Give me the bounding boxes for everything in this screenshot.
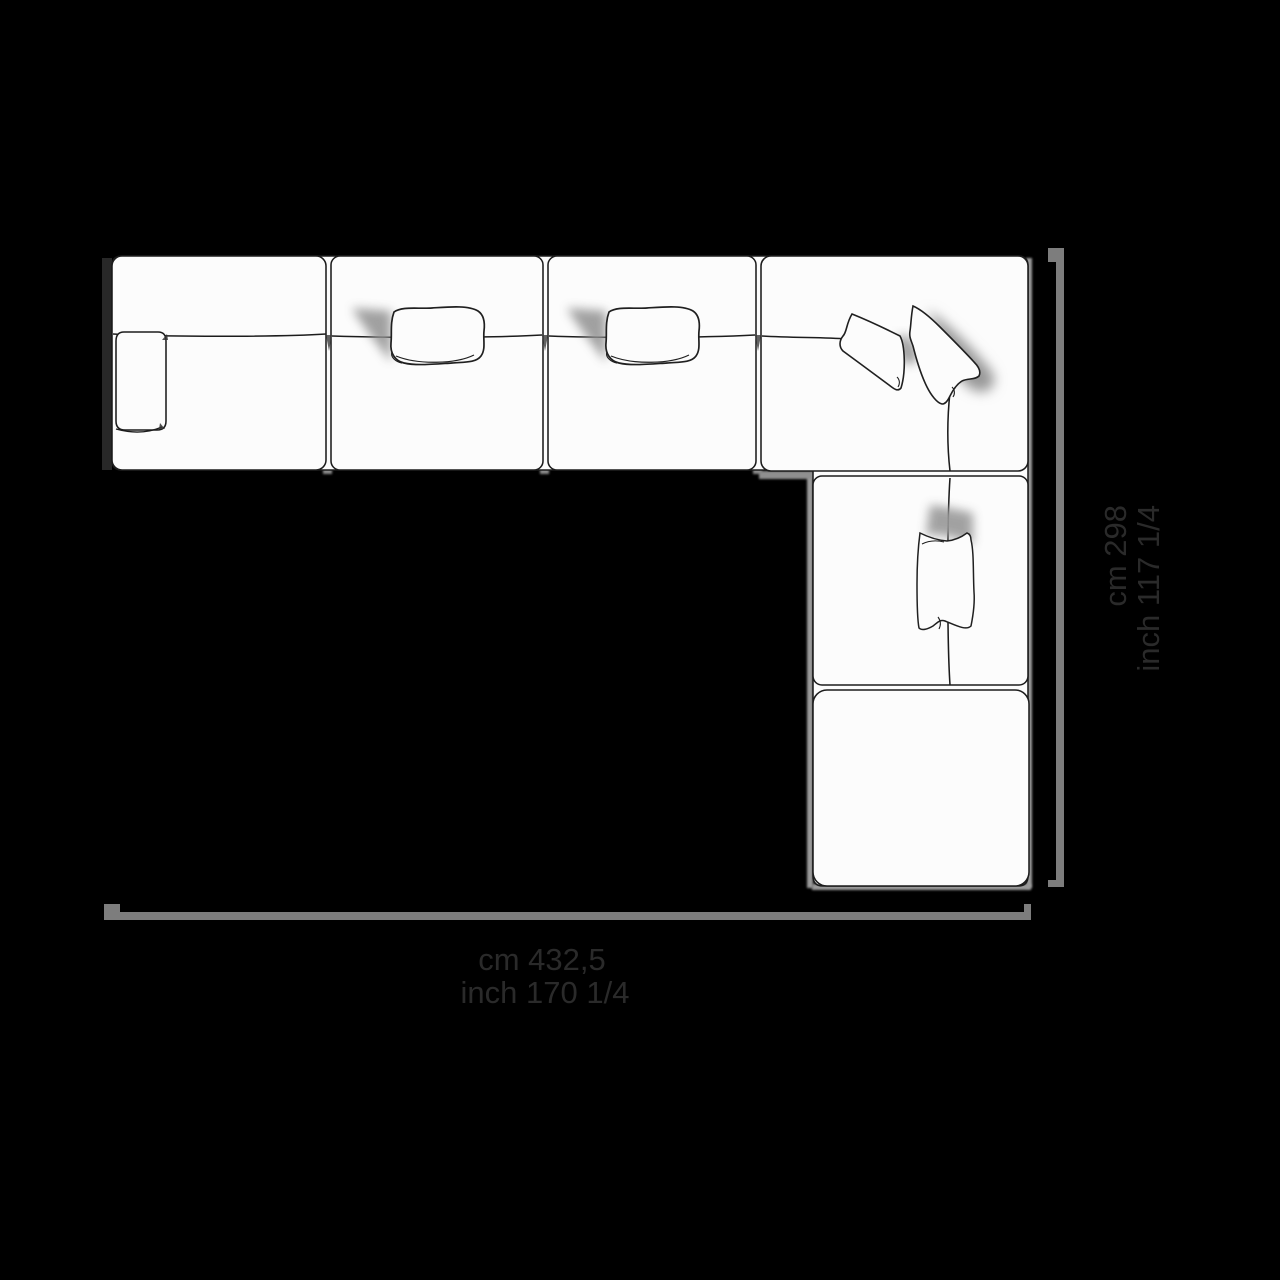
svg-text:cm 432,5: cm 432,5 — [478, 942, 606, 977]
svg-text:cm 298: cm 298 — [1098, 505, 1133, 607]
svg-text:inch 170 1/4: inch 170 1/4 — [461, 975, 630, 1010]
svg-text:inch 117 1/4: inch 117 1/4 — [1131, 505, 1166, 672]
